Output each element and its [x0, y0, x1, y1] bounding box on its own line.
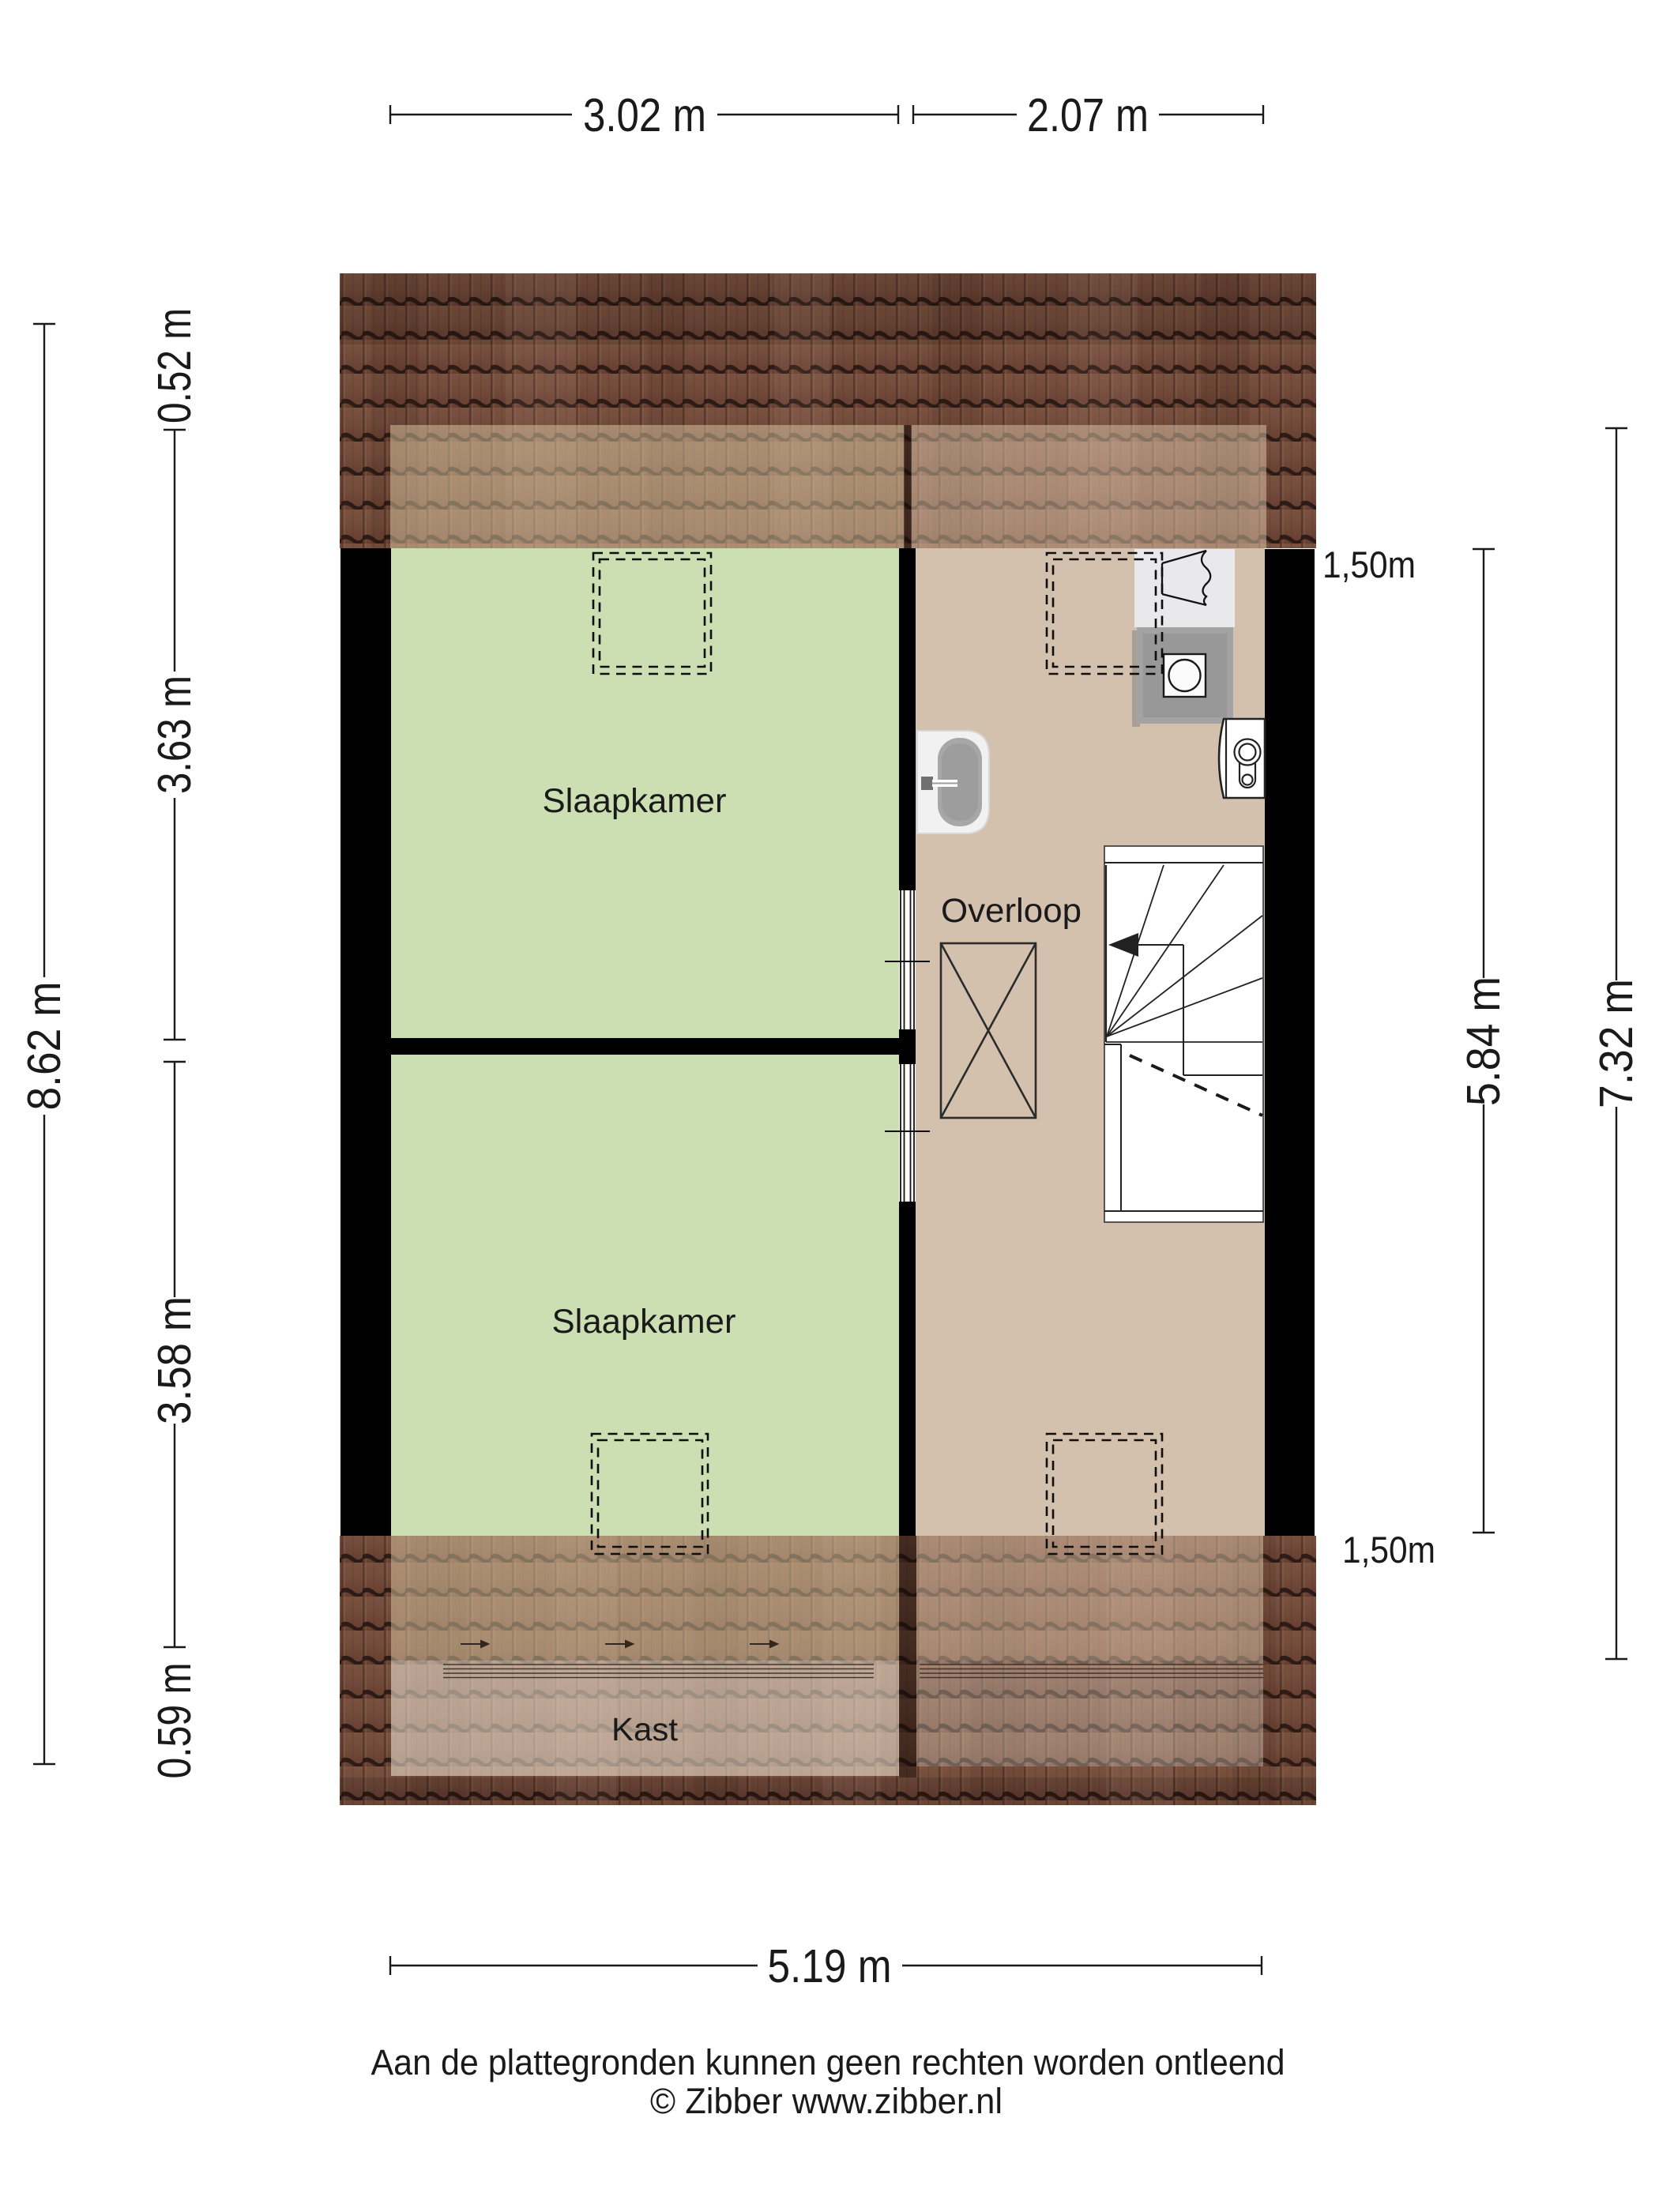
svg-text:© Zibber www.zibber.nl: © Zibber www.zibber.nl [650, 2081, 1003, 2121]
svg-text:Overloop: Overloop [941, 892, 1082, 930]
svg-text:8.62 m: 8.62 m [18, 982, 70, 1111]
svg-text:Slaapkamer: Slaapkamer [543, 782, 727, 820]
svg-text:2.07 m: 2.07 m [1027, 89, 1149, 141]
svg-text:5.19 m: 5.19 m [768, 1940, 892, 1992]
svg-text:3.63 m: 3.63 m [149, 675, 201, 794]
svg-text:Aan de plattegronden kunnen ge: Aan de plattegronden kunnen geen rechten… [371, 2042, 1285, 2082]
svg-text:0.52 m: 0.52 m [149, 308, 201, 423]
svg-text:7.32 m: 7.32 m [1590, 979, 1642, 1108]
svg-text:1,50m: 1,50m [1342, 1529, 1435, 1571]
svg-text:3.02 m: 3.02 m [583, 89, 706, 141]
svg-text:3.58 m: 3.58 m [149, 1296, 201, 1424]
svg-text:Slaapkamer: Slaapkamer [552, 1303, 736, 1341]
svg-text:1,50m: 1,50m [1322, 544, 1416, 585]
svg-text:Kast: Kast [611, 1711, 679, 1747]
svg-text:0.59 m: 0.59 m [149, 1663, 201, 1779]
svg-text:5.84 m: 5.84 m [1458, 976, 1510, 1106]
